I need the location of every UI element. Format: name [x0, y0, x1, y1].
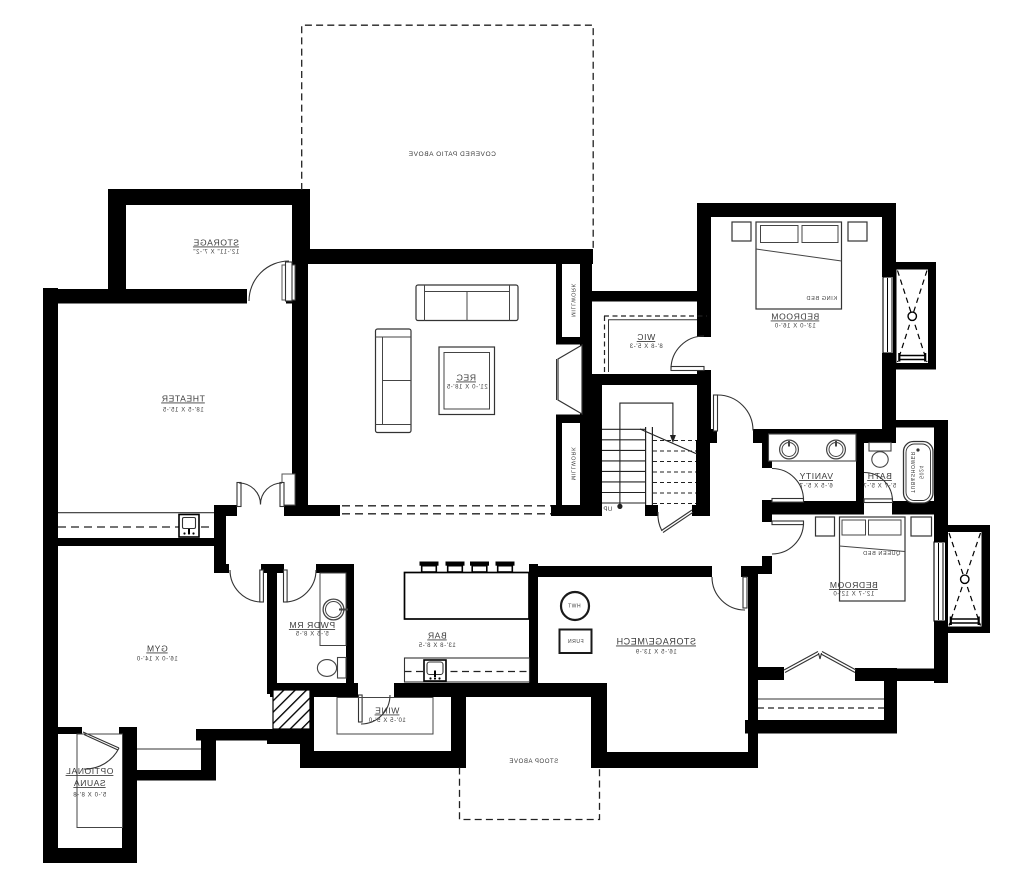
svg-text:COVERED PATIO ABOVE: COVERED PATIO ABOVE — [408, 151, 496, 158]
svg-text:BAR: BAR — [427, 631, 446, 641]
svg-text:KING BED: KING BED — [806, 296, 837, 302]
svg-text:HWT: HWT — [567, 604, 580, 610]
svg-text:STORAGE/MECH: STORAGE/MECH — [616, 637, 696, 647]
svg-text:10'-5 X 5'-0: 10'-5 X 5'-0 — [368, 718, 406, 724]
svg-text:VANITY: VANITY — [799, 471, 833, 481]
svg-text:QUEEN BED: QUEEN BED — [863, 551, 901, 557]
svg-text:5'-0 X 8'-8: 5'-0 X 8'-8 — [73, 793, 107, 799]
svg-text:MILLWORK: MILLWORK — [570, 283, 576, 317]
svg-text:6'-5 X 5'-7: 6'-5 X 5'-7 — [799, 484, 833, 490]
svg-text:21'-0 X 18'-5: 21'-0 X 18'-5 — [446, 385, 488, 391]
svg-text:TUB&SHOWER: TUB&SHOWER — [909, 451, 915, 493]
svg-text:STOOP ABOVE: STOOP ABOVE — [509, 759, 558, 765]
svg-text:BEDROOM: BEDROOM — [771, 312, 820, 322]
svg-text:OPTIONAL: OPTIONAL — [66, 766, 114, 776]
svg-text:GYM: GYM — [146, 644, 167, 654]
svg-text:13'-0 X 16'-0: 13'-0 X 16'-0 — [774, 324, 816, 330]
svg-text:THEATER: THEATER — [161, 394, 205, 404]
svg-text:REC: REC — [456, 373, 476, 383]
svg-text:16'-0 X 14'-0: 16'-0 X 14'-0 — [136, 657, 178, 663]
svg-text:MILLWORK: MILLWORK — [570, 447, 576, 481]
svg-text:12'-11" X 7'-2": 12'-11" X 7'-2" — [193, 250, 239, 256]
svg-text:STORAGE: STORAGE — [193, 238, 239, 248]
svg-text:5024: 5024 — [918, 465, 924, 479]
svg-text:WIC: WIC — [637, 332, 656, 342]
svg-text:BEDROOM: BEDROOM — [829, 580, 878, 590]
svg-text:13'-8 X 8'-5: 13'-8 X 8'-5 — [418, 643, 456, 649]
svg-text:12'-7 X 12'-0: 12'-7 X 12'-0 — [833, 592, 875, 598]
svg-text:WINE: WINE — [375, 706, 400, 716]
svg-text:BATH: BATH — [867, 471, 892, 481]
svg-text:PWDR RM: PWDR RM — [289, 620, 335, 630]
svg-text:UP: UP — [603, 507, 613, 513]
svg-text:SAUNA: SAUNA — [73, 778, 105, 788]
svg-text:FURN: FURN — [567, 639, 583, 645]
svg-text:5'-6 X 8'-5: 5'-6 X 8'-5 — [295, 632, 329, 638]
svg-text:16'-5 X 13'-9: 16'-5 X 13'-9 — [635, 650, 677, 656]
svg-text:5'-7 X 5'-7: 5'-7 X 5'-7 — [863, 484, 897, 490]
svg-text:18'-5 X 15'-5: 18'-5 X 15'-5 — [162, 408, 204, 414]
svg-text:8'-8 X 5'-3: 8'-8 X 5'-3 — [629, 344, 663, 350]
